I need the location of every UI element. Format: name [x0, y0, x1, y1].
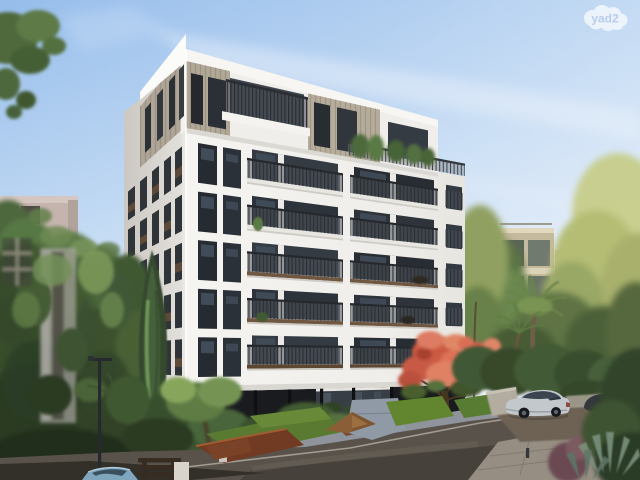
svg-text:yad2: yad2 — [591, 12, 619, 26]
